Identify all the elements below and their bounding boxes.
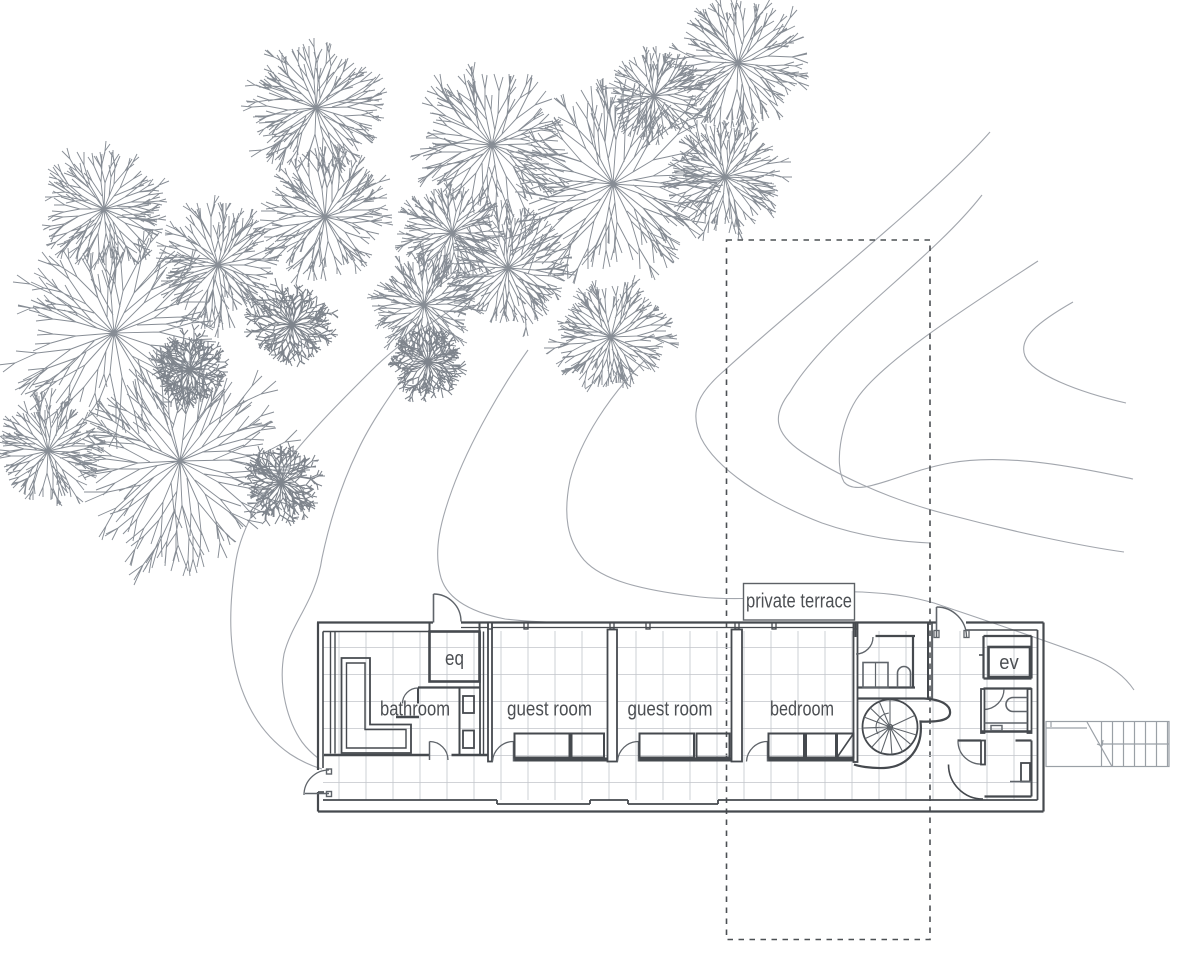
svg-text:guest room: guest room [628,699,713,721]
svg-text:guest room: guest room [507,699,592,721]
svg-text:ev: ev [999,652,1019,674]
svg-text:eq: eq [445,648,464,670]
svg-text:bedroom: bedroom [770,699,834,721]
svg-text:private terrace: private terrace [746,591,852,613]
svg-text:bathroom: bathroom [380,699,450,721]
